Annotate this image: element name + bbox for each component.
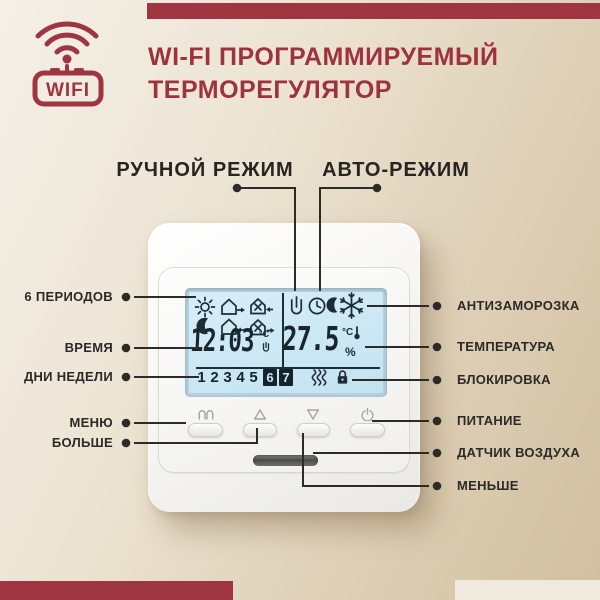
page-title: WI-FI ПРОГРАММИРУЕМЫЙ ТЕРМОРЕГУЛЯТОР: [148, 41, 588, 107]
wifi-badge-text: WIFI: [46, 80, 90, 101]
lcd-frame: 12:03 °C: [185, 288, 387, 397]
hand-manual-icon: [287, 294, 306, 318]
callout-label-time: ВРЕМЯ: [0, 340, 113, 356]
label-auto-mode: АВТО-РЕЖИМ: [316, 159, 476, 179]
house-leave-icon: [220, 297, 246, 317]
weekday-7-inverted: 7: [279, 369, 293, 386]
sun-icon: [194, 296, 216, 318]
time-unit: °C: [259, 329, 269, 339]
temperature-unit: °C: [342, 327, 353, 338]
heat-waves-icon: [310, 369, 328, 386]
callout-label-weekdays: ДНИ НЕДЕЛИ: [0, 369, 113, 385]
arrow-up-icon: [254, 409, 266, 420]
down-button[interactable]: [297, 423, 330, 437]
wifi-icon: WIFI: [28, 12, 112, 108]
menu-book-icon: [197, 408, 215, 421]
thermometer-icon: [353, 325, 361, 340]
weekday-3: 3: [221, 369, 234, 386]
callout-label-more: БОЛЬШЕ: [0, 435, 113, 451]
temperature-value: 27.5: [281, 323, 339, 355]
clock-auto-icon: [307, 296, 327, 316]
callout-label-antifreeze: АНТИЗАМОРОЗКА: [457, 298, 597, 314]
weekday-4: 4: [234, 369, 247, 386]
infographic-canvas: WIFI WI-FI ПРОГРАММИРУЕМЫЙ ТЕРМОРЕГУЛЯТО…: [0, 0, 600, 600]
bottom-red-bar: [0, 581, 233, 600]
callout-label-periods: 6 ПЕРИОДОВ: [0, 289, 113, 305]
moon-night-icon: [326, 296, 340, 314]
percent-sign: %: [345, 345, 356, 359]
air-sensor-slot: [253, 455, 318, 466]
up-button[interactable]: [243, 423, 277, 437]
label-manual-mode: РУЧНОЙ РЕЖИМ: [105, 159, 305, 179]
time-value: 12:03: [189, 326, 254, 356]
callout-label-power: ПИТАНИЕ: [457, 413, 597, 429]
bottom-light-panel: [455, 580, 600, 600]
weekday-6-inverted: 6: [263, 369, 277, 386]
top-red-bar: [147, 3, 600, 19]
snowflake-icon: [339, 292, 364, 319]
menu-button[interactable]: [188, 423, 223, 437]
weekday-1: 1: [195, 369, 208, 386]
weekday-2: 2: [208, 369, 221, 386]
mini-hand-icon: [261, 341, 271, 353]
weekday-digits: 12345: [195, 369, 260, 386]
callout-label-air-sensor: ДАТЧИК ВОЗДУХА: [457, 445, 597, 461]
weekday-5: 5: [247, 369, 260, 386]
thermostat-device: 12:03 °C: [148, 223, 420, 512]
callout-label-lock: БЛОКИРОВКА: [457, 372, 597, 388]
lcd-display: 12:03 °C: [189, 292, 383, 393]
callout-label-less: МЕНЬШЕ: [457, 478, 597, 494]
power-icon: [361, 407, 374, 421]
house-dinner-return-icon: [247, 296, 275, 317]
title-line1: WI-FI ПРОГРАММИРУЕМЫЙ: [148, 41, 588, 74]
power-button[interactable]: [350, 423, 385, 437]
title-line2: ТЕРМОРЕГУЛЯТОР: [148, 74, 588, 107]
arrow-down-icon: [307, 409, 319, 420]
callout-label-menu: МЕНЮ: [0, 415, 113, 431]
lock-icon: [335, 368, 350, 386]
callout-label-temperature: ТЕМПЕРАТУРА: [457, 339, 597, 355]
